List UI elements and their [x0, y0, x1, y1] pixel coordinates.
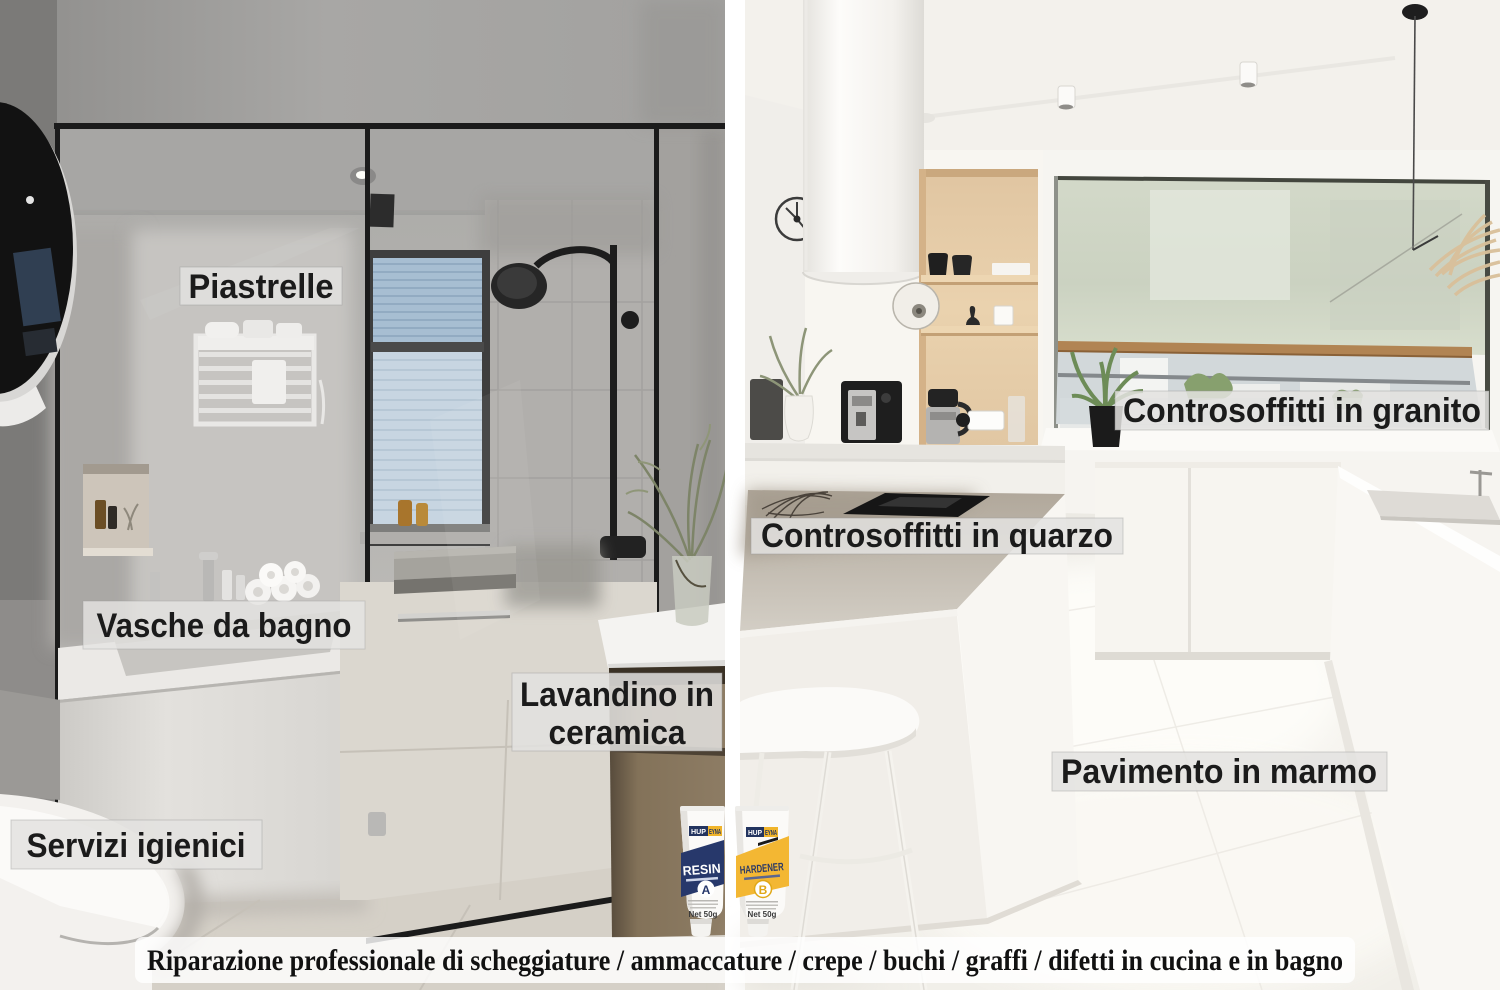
svg-text:RESIN: RESIN: [682, 861, 721, 879]
svg-text:HUP: HUP: [748, 830, 762, 837]
svg-text:HUP: HUP: [691, 829, 706, 836]
svg-text:Riparazione professionale di s: Riparazione professionale di scheggiatur…: [147, 944, 1343, 977]
svg-text:Servizi igienici: Servizi igienici: [27, 827, 246, 865]
svg-text:Lavandino in: Lavandino in: [520, 676, 714, 714]
svg-text:A: A: [702, 883, 711, 897]
svg-text:Piastrelle: Piastrelle: [189, 268, 334, 306]
svg-text:Net 50g: Net 50g: [748, 910, 777, 919]
svg-text:EYNA: EYNA: [765, 830, 777, 837]
svg-text:ceramica: ceramica: [549, 714, 687, 752]
svg-text:Controsoffitti in quarzo: Controsoffitti in quarzo: [761, 517, 1113, 555]
svg-text:Controsoffitti in granito: Controsoffitti in granito: [1123, 392, 1481, 430]
svg-text:Vasche da bagno: Vasche da bagno: [97, 607, 352, 645]
svg-text:B: B: [759, 883, 768, 897]
svg-text:EYNA: EYNA: [709, 829, 721, 836]
svg-text:Pavimento in marmo: Pavimento in marmo: [1061, 753, 1377, 791]
svg-text:Net 50g: Net 50g: [689, 910, 718, 919]
